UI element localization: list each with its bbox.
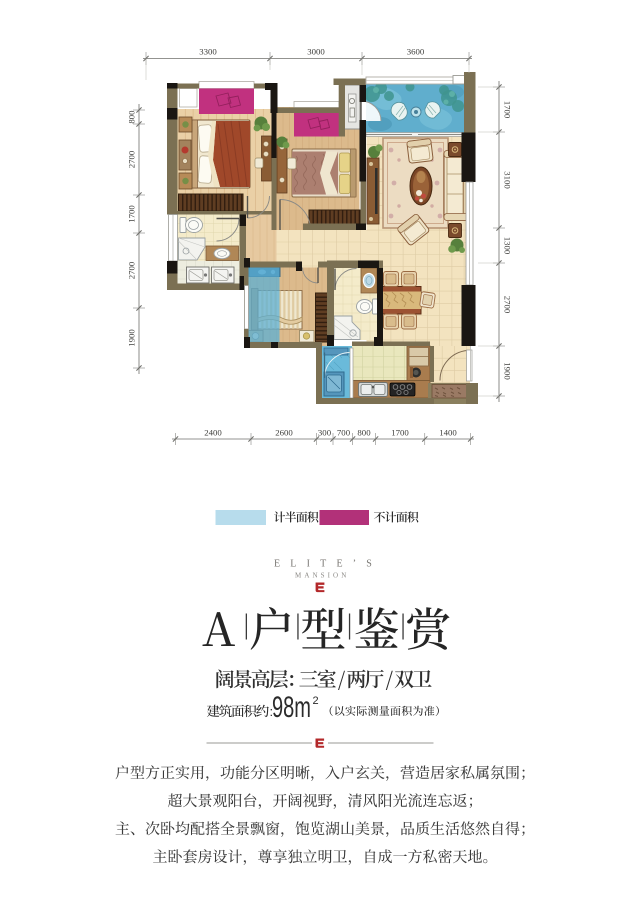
svg-text:1700: 1700 (391, 428, 409, 438)
svg-text:2700: 2700 (503, 296, 513, 314)
svg-text:1700: 1700 (127, 205, 137, 223)
svg-text:ELITE’S: ELITE’S (274, 559, 382, 570)
svg-text:98m: 98m (272, 691, 311, 724)
svg-text:2700: 2700 (127, 261, 137, 279)
svg-text:3000: 3000 (307, 47, 325, 57)
svg-text:1900: 1900 (503, 362, 513, 380)
svg-text:1400: 1400 (439, 428, 457, 438)
svg-text:300: 300 (318, 428, 332, 438)
svg-text:2700: 2700 (127, 150, 137, 168)
svg-text:1900: 1900 (127, 329, 137, 347)
svg-text:3100: 3100 (503, 171, 513, 189)
svg-text:3300: 3300 (199, 47, 217, 57)
svg-text:1700: 1700 (503, 101, 513, 119)
svg-text:3600: 3600 (407, 47, 425, 57)
svg-text:2600: 2600 (275, 428, 293, 438)
svg-text:800: 800 (357, 428, 371, 438)
svg-text:800: 800 (127, 110, 137, 124)
svg-text:2400: 2400 (204, 428, 222, 438)
svg-text:1300: 1300 (503, 237, 513, 255)
svg-text:700: 700 (337, 428, 351, 438)
svg-text:2: 2 (313, 695, 319, 707)
svg-text::: : (270, 704, 274, 719)
svg-text:MANSION: MANSION (295, 572, 349, 580)
